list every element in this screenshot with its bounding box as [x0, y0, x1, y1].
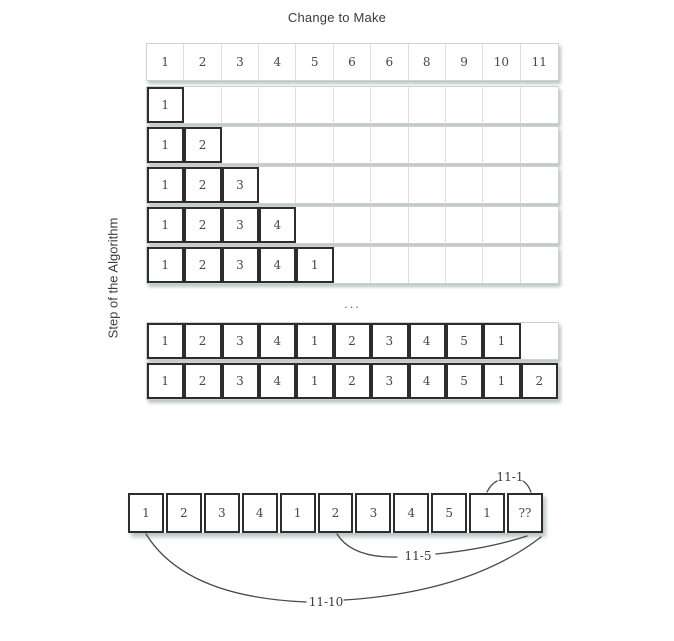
grid-cell: 1: [296, 363, 333, 399]
header-row: 1234566891011: [146, 43, 559, 81]
arc-label-11-10: 11-10: [309, 595, 344, 609]
grid-cell: [521, 207, 558, 243]
grid-cell: [521, 167, 558, 203]
final-row-cell: 3: [204, 493, 240, 533]
grid-cell: 1: [147, 363, 184, 399]
grid-cell: 4: [259, 323, 296, 359]
grid-cell: 3: [222, 363, 259, 399]
header-cell: 6: [371, 44, 408, 80]
step-row-3: 123: [146, 166, 559, 204]
grid-cell: [409, 167, 446, 203]
header-cell: 6: [334, 44, 371, 80]
grid-cell: 3: [222, 207, 259, 243]
grid-cell: [446, 87, 483, 123]
header-cell: 1: [147, 44, 184, 80]
grid-cell: [409, 87, 446, 123]
step-row-1: 1: [146, 86, 559, 124]
grid-cell: [222, 87, 259, 123]
grid-cell: [296, 207, 333, 243]
grid-cell: [483, 87, 520, 123]
grid-cell: 3: [222, 323, 259, 359]
header-cell: 3: [222, 44, 259, 80]
diagram-canvas: Change to Make Step of the Algorithm 123…: [0, 0, 674, 641]
header-cell: 11: [521, 44, 558, 80]
grid-cell: 1: [147, 323, 184, 359]
step-row-4: 1234: [146, 206, 559, 244]
grid-cell: [409, 247, 446, 283]
final-row: 1234123451??: [128, 493, 543, 533]
grid-cell: 1: [147, 247, 184, 283]
chart-title: Change to Make: [0, 10, 674, 25]
grid-cell: 2: [184, 323, 221, 359]
step-row-2: 12: [146, 126, 559, 164]
arc-11-10-right: [344, 537, 541, 600]
y-axis-label: Step of the Algorithm: [106, 218, 121, 339]
grid-cell: [296, 167, 333, 203]
grid-cell: [296, 127, 333, 163]
grid-cell: 1: [296, 247, 333, 283]
header-cell: 8: [409, 44, 446, 80]
grid-cell: [409, 127, 446, 163]
grid-cell: [222, 127, 259, 163]
grid-cell: [334, 167, 371, 203]
grid-cell: [483, 207, 520, 243]
grid-cell: 4: [409, 323, 446, 359]
final-row-cell: 2: [318, 493, 354, 533]
final-row-cell: 1: [128, 493, 164, 533]
ellipsis: ...: [146, 286, 559, 322]
grid-cell: 1: [296, 323, 333, 359]
arc-11-5-left: [337, 534, 397, 557]
final-row-cell: 5: [431, 493, 467, 533]
step-row-5: 12341: [146, 246, 559, 284]
arc-11-10-left: [146, 534, 306, 602]
grid-cell: [521, 127, 558, 163]
grid-cell: [371, 127, 408, 163]
arc-11-5-right: [436, 536, 527, 554]
grid-cell: 4: [259, 207, 296, 243]
final-row-cell: ??: [507, 493, 543, 533]
grid-cell: 5: [446, 363, 483, 399]
grid-cell: 1: [483, 363, 520, 399]
arc-11-1-right: [523, 481, 531, 492]
grid-cell: 2: [184, 247, 221, 283]
grid-cell: [371, 247, 408, 283]
grid-cell: [371, 167, 408, 203]
grid-cell: 1: [147, 167, 184, 203]
final-row-cell: 1: [469, 493, 505, 533]
grid-cell: 2: [184, 207, 221, 243]
arc-label-11-1: 11-1: [497, 470, 524, 484]
grid-cell: [521, 87, 558, 123]
grid-cell: 2: [184, 167, 221, 203]
grid-cell: 4: [409, 363, 446, 399]
grid-cell: 2: [184, 363, 221, 399]
grid-cell: [521, 247, 558, 283]
header-cell: 5: [296, 44, 333, 80]
later-row-1: 1234123451: [146, 322, 559, 360]
grid-cell: 1: [147, 87, 184, 123]
header-cell: 2: [184, 44, 221, 80]
final-row-cell: 3: [355, 493, 391, 533]
grid-cell: 2: [184, 127, 221, 163]
grid-cell: [259, 167, 296, 203]
grid-cell: [334, 207, 371, 243]
dp-table: 1234566891011 1 12 123 1234 12341 ... 12…: [146, 43, 559, 402]
grid-cell: [334, 87, 371, 123]
grid-cell: 4: [259, 247, 296, 283]
grid-cell: 2: [334, 363, 371, 399]
grid-cell: 3: [222, 167, 259, 203]
grid-cell: [371, 207, 408, 243]
final-row-cell: 1: [280, 493, 316, 533]
arc-label-11-5: 11-5: [405, 549, 432, 563]
grid-cell: 2: [521, 363, 558, 399]
grid-cell: [446, 207, 483, 243]
grid-cell: [184, 87, 221, 123]
grid-cell: 3: [222, 247, 259, 283]
grid-cell: 1: [483, 323, 520, 359]
grid-cell: [296, 87, 333, 123]
grid-cell: [446, 247, 483, 283]
header-cell: 10: [483, 44, 520, 80]
grid-cell: [334, 127, 371, 163]
grid-cell: 4: [259, 363, 296, 399]
final-row-cell: 4: [393, 493, 429, 533]
grid-cell: [483, 127, 520, 163]
grid-cell: [334, 247, 371, 283]
arc-11-1-left: [487, 481, 497, 492]
grid-cell: [259, 87, 296, 123]
later-row-2: 12341234512: [146, 362, 559, 400]
grid-cell: [259, 127, 296, 163]
final-row-cell: 2: [166, 493, 202, 533]
grid-cell: 3: [371, 323, 408, 359]
grid-cell: 1: [147, 207, 184, 243]
grid-cell: [521, 323, 558, 359]
header-cell: 4: [259, 44, 296, 80]
grid-cell: 5: [446, 323, 483, 359]
grid-cell: [483, 167, 520, 203]
grid-cell: [483, 247, 520, 283]
grid-cell: [371, 87, 408, 123]
final-row-cell: 4: [242, 493, 278, 533]
grid-cell: [446, 127, 483, 163]
grid-cell: [409, 207, 446, 243]
grid-cell: 1: [147, 127, 184, 163]
header-cell: 9: [446, 44, 483, 80]
grid-cell: 3: [371, 363, 408, 399]
grid-cell: 2: [334, 323, 371, 359]
grid-cell: [446, 167, 483, 203]
